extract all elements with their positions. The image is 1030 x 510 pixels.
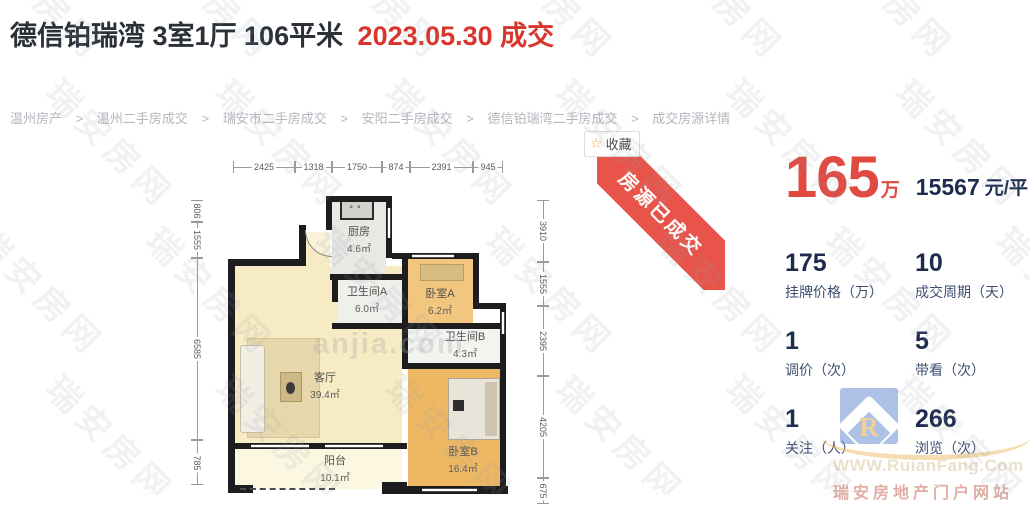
dimension-chain-left: 806 1555 6585 785 [191,200,203,485]
price-per-sqm: 15567 [916,174,980,201]
nightstand [453,400,464,411]
dimension-chain-top: 2425 1318 1750 874 2391 945 [233,161,503,173]
star-icon: ☆ [590,135,603,152]
room-label-bath-a: 卫生间A 6.0㎡ [332,286,402,315]
window [325,444,383,448]
watermark-text: 瑞安房网 [647,0,798,70]
dim-value: 1555 [538,272,548,296]
wall [330,274,406,280]
sold-ribbon-strip: 房源已成交 [597,150,725,290]
watermark-text: 瑞安房网 [37,67,188,218]
wall [228,259,235,449]
breadcrumb-separator: > [466,111,474,126]
dim-value: 1555 [192,228,202,252]
dim-value: 785 [192,453,202,472]
wall [402,363,506,369]
breadcrumb-item-complex-deals[interactable]: 德信铂瑞湾二手房成交 [487,111,617,126]
dim-value: 1750 [345,162,369,172]
wall [382,482,407,494]
wall [228,259,306,266]
breadcrumb-separator: > [340,111,348,126]
room-label-living: 客厅 39.4㎡ [285,372,365,401]
breadcrumb-item-anyang-deals[interactable]: 安阳二手房成交 [362,111,453,126]
tatami-mat [420,264,464,281]
stove-top: °° [342,202,372,218]
dim-value: 2391 [429,162,453,172]
sold-ribbon-label: 房源已成交 [614,165,711,262]
title-property: 德信铂瑞湾 3室1厅 106平米 [10,21,343,51]
breadcrumb-item-wenzhou[interactable]: 温州房产 [10,111,62,126]
bed-pillow [485,382,497,436]
watermark-text: 瑞安房网 [37,363,188,495]
site-url-text: WWW.RuianFang.Com [833,456,1030,476]
favorite-label: 收藏 [606,134,632,153]
dim-value: 4205 [538,415,548,439]
window [412,254,454,258]
dim-value: 2395 [538,329,548,353]
stat-price-adjustments: 1 调价（次） [785,326,915,380]
stat-listing-price: 175 挂牌价格（万） [785,248,915,302]
stat-deal-cycle: 10 成交周期（天） [915,248,1030,302]
site-slogan-text: 瑞安房地产门户网站 [833,479,1030,503]
balcony-dashed-line [240,488,335,490]
dim-value: 675 [538,481,548,500]
title-deal-date: 2023.05.30 成交 [358,21,555,51]
breadcrumb: 温州房产 > 温州二手房成交 > 瑞安市二手房成交 > 安阳二手房成交 > 德信… [10,108,740,127]
dim-value: 2425 [252,162,276,172]
floorplan-source-watermark: anjia.com [313,328,465,361]
favorite-button[interactable]: ☆ 收藏 [584,131,640,157]
watermark-text: 瑞安房网 [987,0,1030,70]
window [422,488,477,492]
price-value: 165 [785,152,879,204]
wall [473,253,479,309]
dim-value: 945 [478,162,497,172]
window [387,208,391,238]
window [251,444,309,448]
dim-value: 1318 [301,162,325,172]
deal-stats: 175 挂牌价格（万） 10 成交周期（天） 1 调价（次） 5 带看（次） 1… [785,248,1030,458]
page: { "header": { "title_main": "德信铂瑞湾 3室1厅 … [0,0,1030,495]
room-label-bedroom-a: 卧室A 6.2㎡ [407,288,473,317]
room-label-bedroom-b: 卧室B 16.4㎡ [423,446,503,475]
wall [326,196,332,230]
sofa [240,345,265,433]
sold-ribbon: 房源已成交 [597,150,725,290]
dimension-chain-right: 3910 1555 2395 4205 675 [537,200,549,504]
floorplan: °° 厨房 4.6㎡ 卫生间A 6.0㎡ 卧室A 6.2㎡ 卫生间B 4.3㎡ [185,150,605,510]
room-label-balcony: 阳台 10.1㎡ [305,455,365,484]
dim-value: 3910 [538,219,548,243]
breadcrumb-separator: > [631,111,639,126]
price-per-sqm-unit: 元/平 [985,173,1028,200]
deal-price: 165 万 15567 元/平 [785,152,1028,204]
stat-page-views: 266 浏览（次） [915,404,1030,458]
dim-value: 806 [192,201,202,220]
dim-value: 6585 [192,337,202,361]
breadcrumb-item-wenzhou-deals[interactable]: 温州二手房成交 [97,111,188,126]
page-title: 德信铂瑞湾 3室1厅 106平米 2023.05.30 成交 [10,14,554,53]
watermark-text: 瑞安房网 [0,215,117,366]
breadcrumb-item-ruian-deals[interactable]: 瑞安市二手房成交 [223,111,327,126]
stat-viewings: 5 带看（次） [915,326,1030,380]
breadcrumb-separator: > [202,111,210,126]
wall [326,196,392,202]
dim-value: 874 [386,162,405,172]
price-unit: 万 [881,175,900,202]
breadcrumb-separator: > [76,111,84,126]
breadcrumb-item-current: 成交房源详情 [652,111,730,126]
room-label-kitchen: 厨房 4.6㎡ [332,226,386,255]
watermark-text: 瑞安房网 [817,0,968,70]
stat-followers: 1 关注（人） [785,404,915,458]
